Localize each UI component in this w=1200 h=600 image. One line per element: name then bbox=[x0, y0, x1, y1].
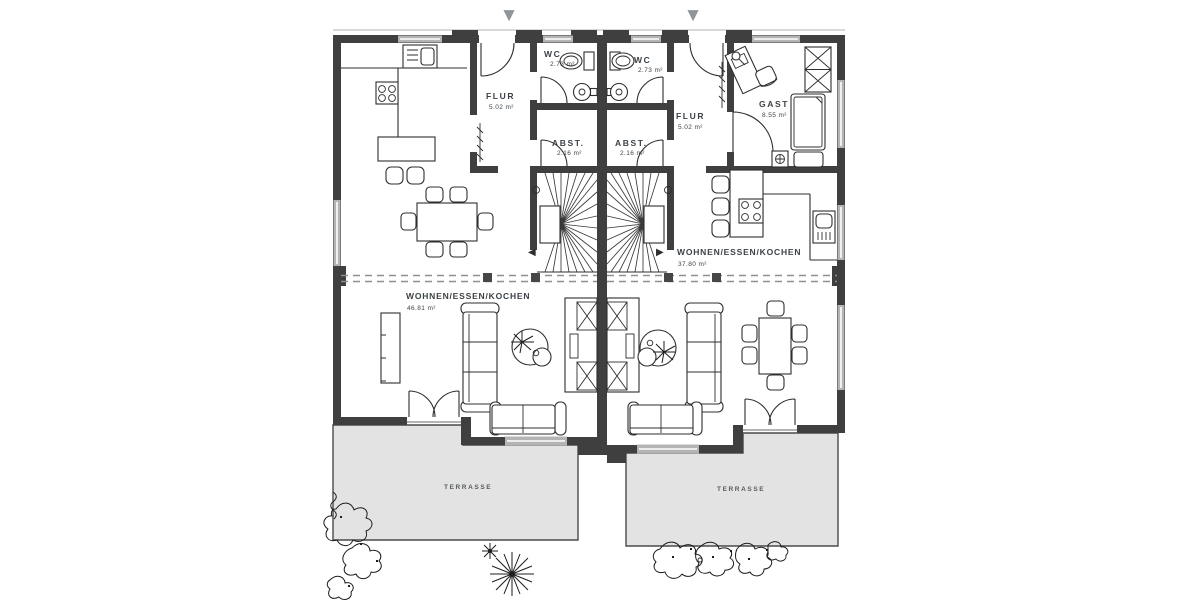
terrace-label-left: TERRASSE bbox=[444, 484, 492, 491]
room-area-flur-right: 5.02 m² bbox=[678, 124, 703, 131]
plant-table-left bbox=[511, 329, 551, 366]
toilet-right bbox=[610, 52, 634, 70]
sofa-left-vertical bbox=[461, 303, 499, 412]
sink-left bbox=[574, 84, 598, 101]
kitchen-left bbox=[341, 45, 467, 184]
room-area-abst-right: 2.16 m² bbox=[620, 150, 645, 157]
room-label-abst-right: ABST. bbox=[615, 138, 648, 148]
room-label-gast: GAST bbox=[759, 99, 789, 109]
canopy-dashed-lines bbox=[341, 273, 837, 282]
sofa-right-horizontal bbox=[628, 402, 702, 435]
media-unit-left bbox=[565, 298, 597, 392]
room-area-abst-left: 2.16 m² bbox=[557, 150, 582, 157]
entrance-arrow-left-icon: ▼ bbox=[499, 6, 519, 25]
stair-left bbox=[533, 173, 598, 272]
room-label-wohnen-left: WOHNEN/ESSEN/KOCHEN bbox=[406, 291, 530, 301]
stair-direction-left-icon: ◀ bbox=[528, 248, 536, 258]
room-label-wc-right: WC bbox=[634, 55, 651, 65]
room-label-flur-right: FLUR bbox=[676, 111, 705, 121]
room-area-wc-right: 2.73 m² bbox=[638, 67, 663, 74]
floor-plan-page: ▼ ▼ ◀ ▶ FLUR 5.02 m² WC 2.73 m² ABST. 2.… bbox=[0, 0, 1200, 600]
room-label-abst-left: ABST. bbox=[552, 138, 585, 148]
room-area-wohnen-right: 37.80 m² bbox=[678, 261, 707, 268]
entrance-arrow-right-icon: ▼ bbox=[683, 6, 703, 25]
plant-table-right bbox=[638, 330, 676, 366]
room-label-flur-left: FLUR bbox=[486, 91, 515, 101]
coat-rail-right bbox=[719, 62, 725, 108]
gast-wardrobe bbox=[805, 47, 831, 92]
sideboard-left bbox=[381, 313, 400, 383]
gast-bed bbox=[791, 94, 825, 167]
room-label-wc-left: WC bbox=[544, 49, 561, 59]
room-label-wohnen-right: WOHNEN/ESSEN/KOCHEN bbox=[677, 247, 801, 257]
gast-nightstand bbox=[772, 151, 788, 167]
sofa-right-vertical bbox=[685, 303, 723, 412]
sofa-left-horizontal bbox=[490, 402, 566, 435]
room-area-gast: 8.55 m² bbox=[762, 112, 787, 119]
dining-set-right bbox=[742, 301, 807, 390]
coat-rail-left bbox=[477, 123, 483, 162]
media-unit-right bbox=[607, 298, 639, 392]
floor-plan-drawing bbox=[0, 0, 1200, 600]
room-area-flur-left: 5.02 m² bbox=[489, 104, 514, 111]
terrace-label-right: TERRASSE bbox=[717, 486, 765, 493]
stair-direction-right-icon: ▶ bbox=[656, 248, 664, 258]
dining-set-left bbox=[401, 187, 493, 257]
room-area-wc-left: 2.73 m² bbox=[550, 61, 575, 68]
room-area-wohnen-left: 46.81 m² bbox=[407, 305, 436, 312]
sink-right bbox=[607, 84, 628, 101]
